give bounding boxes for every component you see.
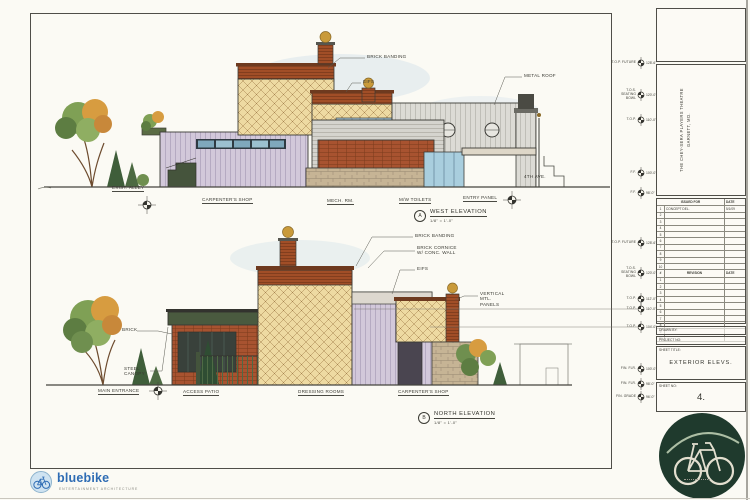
- west-elevation-title: WEST ELEVATION: [430, 209, 487, 217]
- label-mw-toilets: M/W TOILETS: [399, 197, 431, 204]
- bluebike-logo-circle: [30, 471, 52, 493]
- titleblock-stamp-box: [656, 8, 746, 62]
- label-brick-cornice: BRICK CORNICE W/ CONC. WALL: [417, 245, 457, 256]
- elevation-artwork: [0, 0, 750, 500]
- fine-print-mark: [684, 477, 710, 480]
- bluebike-logo-tagline: ENTERTAINMENT ARCHITECTURE: [59, 487, 138, 491]
- sheet-title-box: SHEET TITLE: EXTERIOR ELEVS.: [656, 346, 746, 380]
- bluebike-logo-wordmark: bluebike: [57, 471, 109, 485]
- label-access-patio: ACCESS PATIO: [183, 389, 219, 396]
- label-dressing-rooms: DRESSING ROOMS: [298, 389, 344, 396]
- north-trees: [63, 296, 163, 385]
- label-brick-banding-north: BRICK BANDING: [415, 233, 455, 238]
- sheet-no-box: SHEET NO: 4.: [656, 382, 746, 412]
- sheet-edge-shadow-right: [746, 0, 748, 500]
- label-mtl-panels: VERTICAL MTL. PANELS: [480, 291, 510, 307]
- label-brick: BRICK: [122, 327, 137, 332]
- label-fourth-ave: 4TH AVE.: [524, 174, 546, 179]
- project-location: GARNETT, MO.: [686, 67, 693, 193]
- label-main-entrance: MAIN ENTRANCE: [98, 388, 139, 395]
- revision-table-header: # REVISION DATE: [657, 270, 745, 277]
- label-carpenters-shop-west: CARPENTER'S SHOP: [202, 197, 253, 204]
- drawn-by-box: DRAWN BY:: [656, 326, 746, 335]
- north-elevation-scale: 1/8" = 1'-0": [434, 420, 457, 425]
- label-eifs-north: EIFS: [417, 266, 428, 271]
- sheet-number-value: 4.: [657, 392, 745, 403]
- project-identification: THE CHEY-SERA PLAYERS THEATRE GARNETT, M…: [679, 67, 692, 193]
- west-elevation-ref-bubble: A: [414, 210, 426, 222]
- label-mech-rm: MECH. RM.: [327, 198, 354, 205]
- firm-emblem-circle: [659, 413, 745, 499]
- north-elevation-ref-bubble: B: [418, 412, 430, 424]
- project-no-box: PROJECT NO:: [656, 336, 746, 345]
- titleblock-issue-revision-box: ISSUED FOR DATE 1CONCEPT DEL.5/1/09 2 3 …: [656, 198, 746, 324]
- architectural-sheet: BRICK BANDING EIFS METAL ROOF EXIST. ALL…: [0, 0, 750, 500]
- label-carpenters-shop-north: CARPENTER'S SHOP: [398, 389, 449, 396]
- label-metal-roof: METAL ROOF: [524, 73, 556, 78]
- west-elevation-scale: 1/8" = 1'-0": [430, 218, 453, 223]
- issued-table-header: ISSUED FOR DATE: [657, 199, 745, 206]
- titleblock-project-box: [656, 64, 746, 196]
- label-exist-alley: EXIST. ALLEY: [112, 185, 144, 192]
- north-ref-letter: B: [422, 415, 425, 421]
- sheet-edge-shadow-bottom: [0, 498, 750, 499]
- bicycle-emblem-icon: [659, 413, 745, 499]
- bluebike-bicycle-icon: [31, 472, 51, 492]
- north-elevation-title: NORTH ELEVATION: [434, 411, 495, 419]
- sheet-title-value: EXTERIOR ELEVS.: [657, 360, 745, 366]
- label-brick-banding-west: BRICK BANDING: [367, 54, 407, 59]
- label-steel-canopy: STEEL CANOPY: [124, 366, 146, 377]
- west-trees: [55, 99, 149, 187]
- west-ref-letter: A: [418, 213, 421, 219]
- label-eifs-west: EIFS: [363, 79, 374, 84]
- label-entry-panel: ENTRY PANEL: [463, 195, 497, 202]
